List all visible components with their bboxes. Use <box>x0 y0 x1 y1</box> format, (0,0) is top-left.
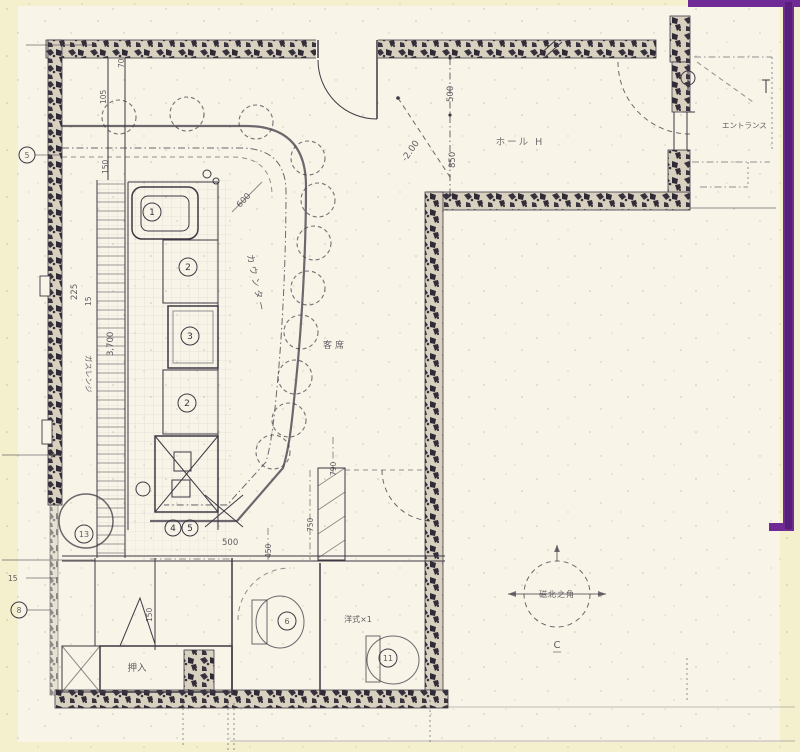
seating-label: 客席 <box>323 339 347 351</box>
dim-500-top: 500 <box>446 86 456 102</box>
round-fixture-number: 13 <box>79 530 89 539</box>
equip-4: 2 <box>184 399 190 409</box>
dim-750: 750 <box>306 517 315 532</box>
toilet-right-number: 11 <box>383 654 393 663</box>
entrance-label: エントランス <box>722 121 767 130</box>
dim-15: 15 <box>84 296 93 306</box>
dim-450: 450 <box>264 543 273 558</box>
dim-3700: 3,700 <box>106 332 116 356</box>
dim-850: 850 <box>448 152 458 168</box>
dim-70: 70 <box>117 58 126 68</box>
axis-left-mid: 15 <box>8 574 18 583</box>
gas-stand-label: ガスレンジ <box>84 355 94 393</box>
hall-label: ホール H <box>496 137 545 148</box>
equip-1: 1 <box>149 208 155 218</box>
dim-150: 150 <box>101 159 110 174</box>
toilet-type-label: 洋式×1 <box>344 614 372 624</box>
dim-105: 105 <box>99 89 108 104</box>
axis-left-top: 5 <box>25 151 30 160</box>
equip-5: 4 <box>170 524 176 534</box>
dim-150-bottom: 150 <box>145 607 154 622</box>
axis-left-bottom: 8 <box>17 606 22 615</box>
dim-790: 790 <box>329 461 338 476</box>
dim-225: 225 <box>70 284 80 300</box>
equip-3: 3 <box>187 332 193 342</box>
floor-plan-drawing: 1 2 3 2 4 5 13 6 <box>0 0 800 752</box>
equip-6: 5 <box>187 524 193 534</box>
compass-c-mark: C <box>554 640 561 651</box>
dim-500-kitchen: 500 <box>222 538 238 548</box>
toilet-left-number: 6 <box>284 617 289 626</box>
scanned-floor-plan-page: 1 2 3 2 4 5 13 6 <box>0 0 800 752</box>
equip-2: 2 <box>185 263 191 273</box>
compass-center-text: 磁北之角 <box>539 589 575 599</box>
closet-label: 押入 <box>127 662 147 674</box>
